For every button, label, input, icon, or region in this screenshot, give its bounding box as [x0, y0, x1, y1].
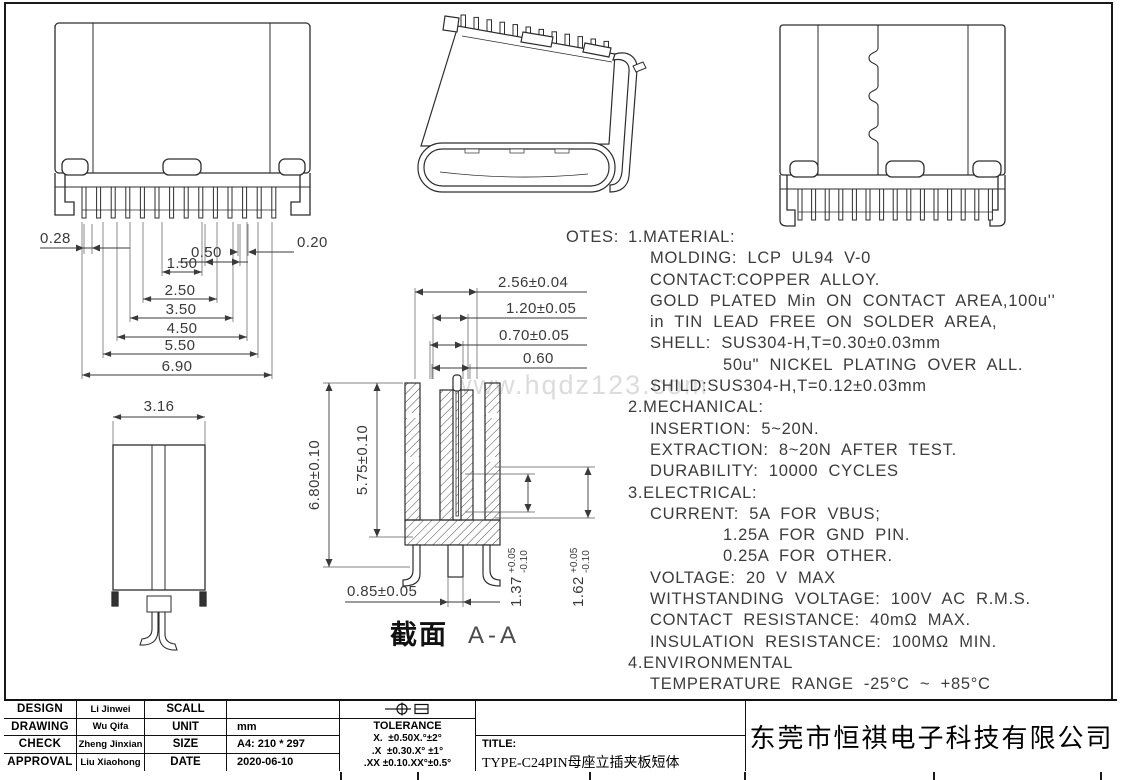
- dim-label: 3.16: [144, 398, 175, 415]
- side-view: 3.16: [100, 395, 270, 655]
- drawing-title-cell: TITLE: TYPE-C24PIN母座立插夹板短体: [476, 736, 746, 771]
- tolerance-angular-2: .X° ±1°: [412, 746, 443, 759]
- note-line: 0.25A FOR OTHER.: [560, 546, 1115, 567]
- section-label-cn: 截面: [390, 620, 448, 650]
- dim-label: 3.50: [166, 301, 197, 318]
- tolerance-angular-3: .XX°±0.5°: [408, 758, 452, 771]
- connector-shell-isometric: [418, 16, 646, 192]
- section-body: [403, 375, 500, 586]
- note-line: in TIN LEAD FREE ON SOLDER AREA,: [560, 312, 1115, 333]
- approval-name: Liu Xiaohong: [77, 754, 145, 772]
- rear-view: [765, 14, 1025, 229]
- connector-shell-front: [55, 23, 310, 215]
- size-value: A4: 210 * 297: [227, 736, 340, 754]
- title-label: TITLE:: [482, 738, 516, 750]
- dim-label: 0.20: [297, 234, 328, 251]
- note-line: 1.MATERIAL:: [628, 228, 735, 246]
- section-title: 截面 A-A: [390, 620, 520, 650]
- note-line: GOLD PLATED Min ON CONTACT AREA,100u'': [560, 291, 1115, 312]
- note-line: MOLDING: LCP UL94 V-0: [560, 248, 1115, 269]
- note-line: CONTACT:COPPER ALLOY.: [560, 270, 1115, 291]
- tolerance-linear-2: .X ±0.30: [372, 746, 412, 759]
- tolerance-table: TOLERANCE X. ±0.50X.°±2° .X ±0.30.X° ±1°…: [340, 719, 476, 772]
- dim-label: 0.85±0.05: [347, 583, 417, 600]
- note-line: TEMPERATURE RANGE -25°C ~ +85°C: [560, 674, 1115, 695]
- check-name: Zheng Jinxian: [77, 736, 145, 754]
- note-line: INSERTION: 5~20N.: [560, 419, 1115, 440]
- unit-value: mm: [227, 719, 340, 737]
- note-line: 1.25A FOR GND PIN.: [560, 525, 1115, 546]
- dim-label: 2.56±0.04: [498, 274, 568, 291]
- isometric-view: [405, 8, 660, 208]
- size-label: SIZE: [145, 736, 227, 754]
- drawing-label: DRAWING: [4, 719, 77, 737]
- unit-label: UNIT: [145, 719, 227, 737]
- dim-label: 6.80±0.10: [306, 440, 323, 510]
- dim-label-toleranced: 1.37 +0.05 -0.10: [507, 547, 530, 607]
- note-line: WITHSTANDING VOLTAGE: 100V AC R.M.S.: [560, 589, 1115, 610]
- engineering-drawing-page: www.hqdz123.com: [0, 0, 1122, 780]
- note-line: 4.ENVIRONMENTAL: [560, 653, 1115, 674]
- scale-label: SCALL: [145, 701, 227, 719]
- title-cell-spacer: [476, 701, 746, 736]
- svg-text:+0.05: +0.05: [507, 547, 518, 573]
- note-line: DURABILITY: 10000 CYCLES: [560, 461, 1115, 482]
- note-line: SHILD:SUS304-H,T=0.12±0.03mm: [560, 376, 1115, 397]
- date-value: 2020-06-10: [227, 754, 340, 772]
- company-name: 东莞市恒祺电子科技有限公司: [746, 701, 1117, 771]
- connector-shell-side: [112, 445, 206, 650]
- pin-row-front: [82, 187, 276, 218]
- dim-label: 6.90: [162, 358, 193, 375]
- notes-heading: OTES:: [566, 227, 622, 248]
- dim-label: 5.50: [165, 337, 196, 354]
- projection-symbol-cell: [340, 701, 476, 719]
- note-line: CONTACT RESISTANCE: 40mΩ MAX.: [560, 610, 1115, 631]
- dim-label: 2.50: [165, 282, 196, 299]
- tolerance-linear-3: .XX ±0.10: [364, 758, 408, 771]
- approval-label: APPROVAL: [4, 754, 77, 772]
- title-block: DESIGN Li Jinwei SCALL DRAWING Wu Qifa U…: [4, 699, 1117, 771]
- tolerance-heading: TOLERANCE: [373, 719, 441, 733]
- tolerance-angular-1: X.°±2°: [413, 733, 442, 746]
- note-line: VOLTAGE: 20 V MAX: [560, 568, 1115, 589]
- dim-label: 0.28: [40, 230, 71, 247]
- svg-text:-0.10: -0.10: [519, 550, 530, 573]
- dim-label: 0.70±0.05: [499, 327, 569, 344]
- design-name: Li Jinwei: [77, 701, 145, 719]
- dim-label: 0.60: [523, 350, 554, 367]
- side-dimension-lines: [113, 417, 205, 447]
- front-view: 0.28 0.50 0.20 1.50 2.50 3.50 4.50 5.50 …: [38, 14, 338, 404]
- notes-block: OTES:1.MATERIAL: MOLDING: LCP UL94 V-0 C…: [560, 227, 1115, 696]
- note-line: INSULATION RESISTANCE: 100MΩ MIN.: [560, 632, 1115, 653]
- drawing-name: Wu Qifa: [77, 719, 145, 737]
- dim-label: 4.50: [167, 320, 198, 337]
- scale-value: [227, 701, 340, 719]
- drawing-title: TYPE-C24PIN母座立插夹板短体: [482, 752, 680, 771]
- note-line: EXTRACTION: 8~20N AFTER TEST.: [560, 440, 1115, 461]
- pin-row-rear: [798, 189, 993, 220]
- dim-label: 5.75±0.10: [354, 425, 371, 495]
- section-label-en: A-A: [468, 622, 520, 649]
- note-line: 3.ELECTRICAL:: [560, 483, 1115, 504]
- note-line: CURRENT: 5A FOR VBUS;: [560, 504, 1115, 525]
- note-line: SHELL: SUS304-H,T=0.30±0.03mm: [560, 333, 1115, 354]
- note-line: 2.MECHANICAL:: [560, 397, 1115, 418]
- projection-symbol-icon: [385, 702, 431, 716]
- check-label: CHECK: [4, 736, 77, 754]
- note-line: 50u" NICKEL PLATING OVER ALL.: [560, 355, 1115, 376]
- tolerance-linear-1: X. ±0.50: [373, 733, 413, 746]
- dim-label: 1.50: [167, 255, 198, 272]
- svg-text:1.37: 1.37: [508, 576, 525, 607]
- date-label: DATE: [145, 754, 227, 772]
- design-label: DESIGN: [4, 701, 77, 719]
